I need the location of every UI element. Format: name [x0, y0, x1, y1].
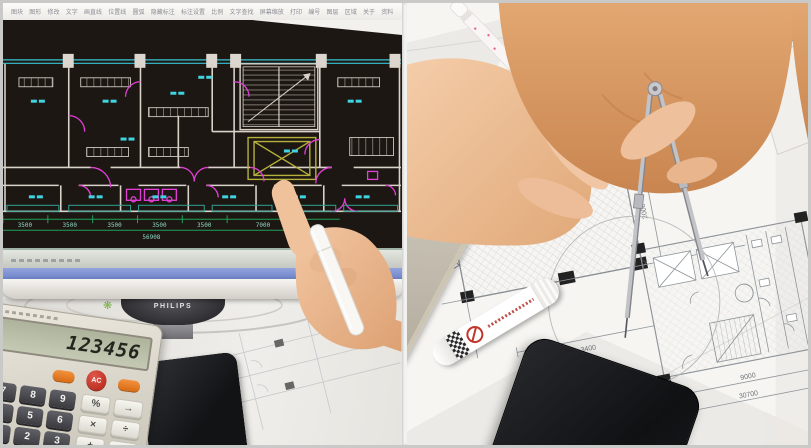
- calculator-digit-keys: 789456123000.: [3, 381, 77, 445]
- cad-menu-item: 隐藏标注: [151, 7, 175, 16]
- photo-collage: 图块图形修改文字画直线位置线圆弧隐藏标注标注设置比例文字查找屏幕缩放打印编号图层…: [0, 0, 811, 448]
- calculator-key: 0: [407, 151, 449, 190]
- cad-menu-item: 文字查找: [230, 7, 254, 16]
- monitor-bezel: [3, 279, 402, 299]
- calculator-key: 5: [16, 406, 44, 426]
- cad-menu-item: 图形: [29, 7, 41, 16]
- svg-text:7000: 7000: [256, 222, 271, 229]
- cad-menu-item: 圆弧: [133, 7, 145, 16]
- calculator-key: 9: [49, 389, 77, 409]
- calculator-display-value: 123456: [65, 332, 142, 364]
- desk-surface: PHILIPS ❋ ❋ 123456 AC 789456123000. %→×÷…: [3, 299, 402, 445]
- cad-menu-item: 文字: [66, 7, 78, 16]
- calculator: 123456 AC 789456123000. %→×÷+−=: [3, 302, 164, 445]
- right-photo-drafting: 2000 2000 3400: [407, 3, 809, 445]
- plant-sprig: ❋: [103, 299, 112, 312]
- cad-menu-item: 修改: [48, 7, 60, 16]
- calculator-key: 7: [3, 381, 17, 401]
- calculator-key: −: [107, 440, 138, 445]
- calculator-key: 2: [13, 426, 41, 445]
- dimension-total: 56908: [142, 234, 160, 241]
- cad-menu-item: 标注设置: [181, 7, 205, 16]
- calculator-key-orange: [117, 378, 140, 392]
- cad-menu-bar: 图块图形修改文字画直线位置线圆弧隐藏标注标注设置比例文字查找屏幕缩放打印编号图层…: [3, 3, 402, 20]
- calculator-key: 6: [46, 410, 74, 430]
- cad-menu-item: 打印: [290, 7, 302, 16]
- calculator-key: 8: [19, 385, 47, 405]
- calculator-key: 0: [3, 443, 8, 445]
- floor-plan-drawing: 3500 3500 3500 3500 3500 7000 56908: [3, 20, 401, 247]
- calculator-key: %: [80, 394, 111, 415]
- cad-menu-item: 资料: [381, 7, 393, 16]
- svg-text:3500: 3500: [107, 222, 122, 229]
- photo-perspective-wedge: [252, 20, 402, 35]
- svg-text:3500: 3500: [197, 222, 212, 229]
- cad-menu-item: 图块: [11, 7, 23, 16]
- calculator-corner-keys: 00174: [407, 129, 451, 252]
- calculator-key-orange: [52, 369, 75, 383]
- calculator-key: 7: [407, 182, 432, 221]
- cad-command-line: [3, 248, 402, 268]
- calculator-key: →: [113, 398, 144, 419]
- calculator-key-ac: AC: [85, 369, 108, 392]
- red-circle-logo-icon: [462, 323, 485, 346]
- cad-menu-item: 画直线: [84, 7, 102, 16]
- cad-menu-item: 屏幕缩放: [260, 7, 284, 16]
- taskbar: [3, 268, 402, 279]
- stairwell: [240, 64, 318, 130]
- cad-menu-item: 关于: [363, 7, 375, 16]
- calculator-key: ×: [78, 414, 109, 435]
- cad-menu-item: 图层: [327, 7, 339, 16]
- cad-canvas: 3500 3500 3500 3500 3500 7000 56908: [3, 20, 402, 248]
- calculator-key: 0: [407, 129, 408, 168]
- calculator-key: ÷: [110, 419, 141, 440]
- calculator-key: 3: [43, 431, 71, 445]
- cad-menu-item: 比例: [211, 7, 223, 16]
- cad-menu-item: 区域: [345, 7, 357, 16]
- command-text-blur: [11, 259, 83, 262]
- svg-text:3500: 3500: [152, 222, 167, 229]
- cad-menu-item: 位置线: [108, 7, 126, 16]
- calculator-key: +: [75, 435, 106, 445]
- calculator-operator-keys: %→×÷+−=: [72, 394, 144, 445]
- calculator-key: 1: [3, 422, 11, 442]
- calculator-key: 4: [3, 402, 14, 422]
- left-photo-cad-workstation: 图块图形修改文字画直线位置线圆弧隐藏标注标注设置比例文字查找屏幕缩放打印编号图层…: [3, 3, 402, 445]
- svg-text:3500: 3500: [63, 222, 78, 229]
- cad-menu-item: 编号: [308, 7, 320, 16]
- svg-text:3500: 3500: [18, 222, 33, 229]
- philips-logo: PHILIPS: [154, 303, 192, 325]
